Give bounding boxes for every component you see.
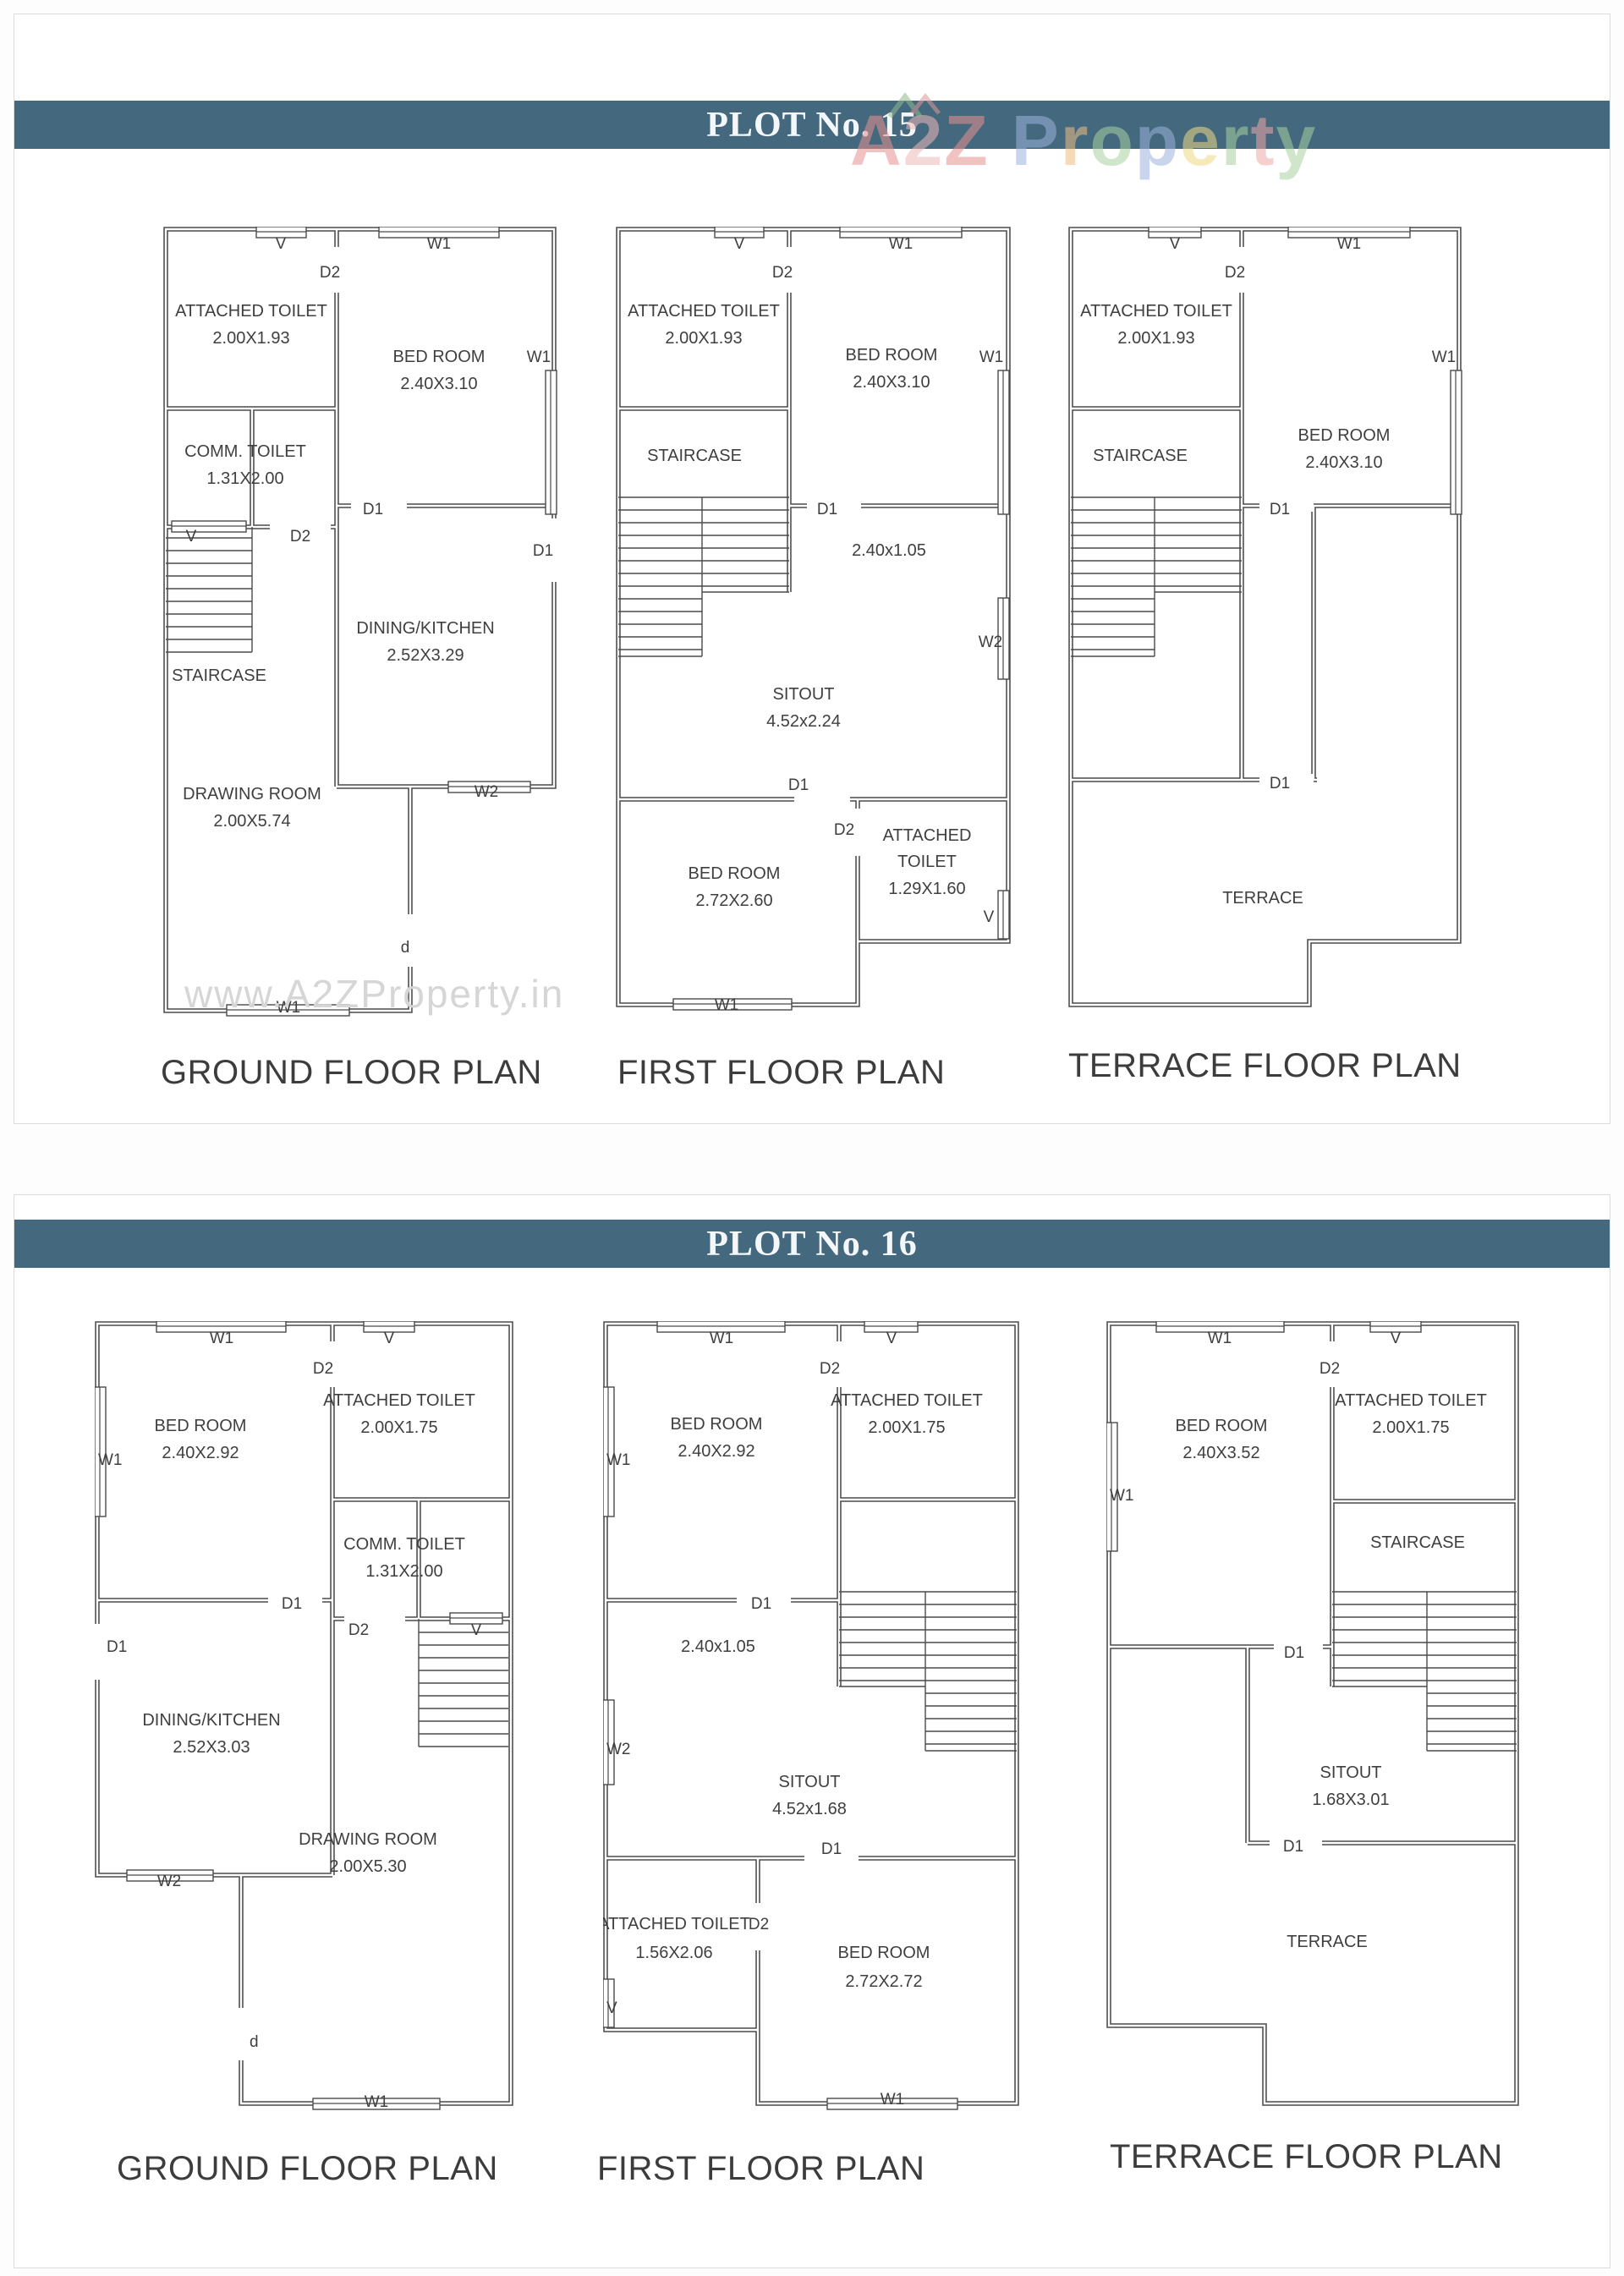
marker-w1: W1 <box>979 348 1004 366</box>
marker-d1: D1 <box>788 776 809 794</box>
marker-v: V <box>606 1999 617 2017</box>
room-label-drawing: DRAWING ROOM <box>183 785 321 803</box>
marker-d2: D2 <box>749 1916 769 1933</box>
marker-d1: D1 <box>282 1595 302 1613</box>
house-icon <box>886 88 942 120</box>
room-label-staircase: STAIRCASE <box>172 666 266 685</box>
room-dim-dining: 2.52X3.03 <box>173 1738 250 1757</box>
marker-d2: D2 <box>772 264 793 282</box>
room-dim-attached-toilet2: 1.56X2.06 <box>635 1944 712 1962</box>
marker-d2: D2 <box>820 1360 840 1378</box>
room-dim-passage: 2.40x1.05 <box>852 541 926 560</box>
room-label-attached-toilet: ATTACHED TOILET <box>1335 1391 1487 1410</box>
room-label-attached-toilet2: ATTACHED <box>883 826 972 845</box>
marker-w2: W2 <box>157 1873 182 1890</box>
room-label-bed-room: BED ROOM <box>393 348 486 366</box>
marker-d1: D1 <box>821 1840 842 1858</box>
logo-letter: e <box>1180 100 1221 182</box>
marker-w1: W1 <box>881 2091 905 2109</box>
marker-v: V <box>276 235 287 253</box>
marker-v: V <box>186 528 197 546</box>
room-dim-attached-toilet: 2.00X1.75 <box>360 1418 437 1437</box>
room-dim-bed-room2: 2.72X2.72 <box>845 1972 922 1991</box>
marker-v: V <box>1391 1330 1402 1347</box>
room-dim-comm-toilet: 1.31X2.00 <box>365 1562 442 1581</box>
room-dim-sitout: 4.52x1.68 <box>772 1800 847 1818</box>
room-dim-attached-toilet2: 1.29X1.60 <box>888 880 965 898</box>
floor-plan-plot16-ground: W1 V D2 W1 D1 D1 V D2 W2 W1 d BED ROOM 2… <box>95 1321 513 2112</box>
room-label-attached-toilet2: TOILET <box>897 853 957 871</box>
marker-d2: D2 <box>320 264 340 282</box>
marker-w1: W1 <box>889 235 913 253</box>
logo-letter: t <box>1250 100 1276 182</box>
room-dim-bed-room: 2.40X3.10 <box>400 375 477 393</box>
marker-w1: W1 <box>606 1451 631 1469</box>
room-label-drawing: DRAWING ROOM <box>299 1830 437 1849</box>
room-label-bed-room: BED ROOM <box>1176 1417 1268 1435</box>
marker-d1: D1 <box>817 501 837 518</box>
marker-w2: W2 <box>475 783 499 801</box>
room-label-bed-room: BED ROOM <box>155 1417 247 1435</box>
room-label-comm-toilet: COMM. TOILET <box>343 1535 465 1554</box>
marker-d1: D1 <box>751 1595 771 1613</box>
marker-d2: D2 <box>1225 264 1245 282</box>
room-label-sitout: SITOUT <box>779 1773 841 1791</box>
marker-d1: D1 <box>533 542 553 560</box>
room-dim-bed-room2: 2.72X2.60 <box>695 891 772 910</box>
marker-d1: D1 <box>1283 1838 1303 1856</box>
plot16-header-bar: PLOT No. 16 <box>14 1220 1610 1268</box>
room-dim-drawing: 2.00X5.74 <box>213 812 290 831</box>
room-dim-sitout: 1.68X3.01 <box>1312 1791 1389 1809</box>
marker-d1: D1 <box>1284 1644 1304 1662</box>
room-label-terrace: TERRACE <box>1222 889 1303 908</box>
room-dim-bed-room: 2.40X3.52 <box>1182 1444 1259 1462</box>
room-dim-attached-toilet: 2.00X1.93 <box>665 329 742 348</box>
room-label-bed-room2: BED ROOM <box>689 864 781 883</box>
marker-d2: D2 <box>290 528 310 546</box>
floor-plan-plot15-ground: V W1 D2 W1 D1 V D2 D1 W2 W1 d ATTACHED T… <box>163 227 558 1017</box>
room-label-dining: DINING/KITCHEN <box>142 1711 280 1730</box>
marker-v: V <box>1170 235 1181 253</box>
room-dim-comm-toilet: 1.31X2.00 <box>206 469 283 488</box>
room-label-dining: DINING/KITCHEN <box>356 619 494 638</box>
plot15-header-bar: PLOT No. 15 <box>14 101 1610 149</box>
marker-v: V <box>471 1621 482 1639</box>
marker-w1: W1 <box>715 996 739 1014</box>
marker-w1: W1 <box>710 1330 734 1347</box>
marker-w1: W1 <box>1337 235 1362 253</box>
room-dim-bed-room: 2.40X3.10 <box>853 373 930 392</box>
room-dim-bed-room: 2.40X3.10 <box>1305 453 1382 472</box>
room-dim-attached-toilet: 2.00X1.75 <box>868 1418 945 1437</box>
marker-d: d <box>250 2033 259 2051</box>
room-dim-bed-room: 2.40X2.92 <box>678 1442 754 1461</box>
room-dim-drawing: 2.00X5.30 <box>329 1857 406 1876</box>
marker-w1: W1 <box>98 1451 123 1469</box>
room-label-staircase: STAIRCASE <box>1370 1533 1465 1552</box>
marker-v: V <box>734 235 745 253</box>
plan-title-plot16-ground: GROUND FLOOR PLAN <box>117 2150 498 2188</box>
room-dim-attached-toilet: 2.00X1.93 <box>212 329 289 348</box>
room-dim-attached-toilet: 2.00X1.93 <box>1117 329 1194 348</box>
marker-w1: W1 <box>210 1330 234 1347</box>
room-label-bed-room2: BED ROOM <box>838 1944 930 1962</box>
room-dim-bed-room: 2.40X2.92 <box>162 1444 239 1462</box>
marker-d2: D2 <box>834 821 854 839</box>
marker-v: V <box>886 1330 897 1347</box>
marker-w2: W2 <box>606 1741 631 1758</box>
plan-title-plot15-first: FIRST FLOOR PLAN <box>617 1054 945 1092</box>
room-label-sitout: SITOUT <box>773 685 835 704</box>
marker-d1: D1 <box>107 1638 127 1656</box>
marker-d1: D1 <box>1270 501 1290 518</box>
room-label-attached-toilet: ATTACHED TOILET <box>831 1391 983 1410</box>
logo-letter: p <box>1135 100 1180 182</box>
logo-letter: r <box>1061 100 1090 182</box>
room-label-terrace: TERRACE <box>1287 1933 1368 1951</box>
room-dim-dining: 2.52X3.29 <box>387 646 464 665</box>
room-dim-sitout: 4.52x2.24 <box>766 712 841 731</box>
plan-title-plot15-ground: GROUND FLOOR PLAN <box>161 1054 542 1092</box>
marker-d1: D1 <box>1270 775 1290 792</box>
room-label-bed-room: BED ROOM <box>1298 426 1391 445</box>
plan-title-plot16-terrace: TERRACE FLOOR PLAN <box>1110 2138 1503 2176</box>
room-dim-passage: 2.40x1.05 <box>681 1637 755 1656</box>
floor-plan-plot15-terrace: V W1 D2 W1 D1 D1 ATTACHED TOILET 2.00X1.… <box>1068 227 1463 1017</box>
room-label-attached-toilet: ATTACHED TOILET <box>175 302 327 321</box>
logo-letter: P <box>1012 100 1061 182</box>
floor-plan-plot16-first: W1 V D2 W1 D1 W2 D1 D2 V W1 BED ROOM 2.4… <box>603 1321 1019 2112</box>
marker-w1: W1 <box>1208 1330 1232 1347</box>
marker-v: V <box>984 908 995 926</box>
marker-d2: D2 <box>1319 1360 1340 1378</box>
room-label-attached-toilet2: ATTACHED TOILET <box>603 1915 750 1933</box>
logo-letter: o <box>1089 100 1134 182</box>
room-label-staircase: STAIRCASE <box>1093 447 1188 465</box>
logo-letter: r <box>1221 100 1251 182</box>
room-dim-attached-toilet: 2.00X1.75 <box>1372 1418 1449 1437</box>
plan-title-plot16-first: FIRST FLOOR PLAN <box>597 2150 924 2188</box>
room-label-attached-toilet: ATTACHED TOILET <box>323 1391 475 1410</box>
marker-w1: W1 <box>427 235 452 253</box>
marker-w2: W2 <box>979 633 1003 651</box>
room-label-attached-toilet: ATTACHED TOILET <box>1080 302 1232 321</box>
floor-plan-plot16-terrace: W1 V D2 W1 D1 D1 BED ROOM 2.40X3.52 ATTA… <box>1106 1321 1521 2112</box>
marker-w1: W1 <box>1432 348 1457 366</box>
room-label-comm-toilet: COMM. TOILET <box>184 442 306 461</box>
room-label-sitout: SITOUT <box>1320 1763 1382 1782</box>
plot16-header-title: PLOT No. 16 <box>706 1224 917 1264</box>
marker-v: V <box>384 1330 395 1347</box>
room-label-staircase: STAIRCASE <box>647 447 742 465</box>
marker-w1: W1 <box>527 348 551 366</box>
marker-w1: W1 <box>365 2093 389 2111</box>
room-label-bed-room: BED ROOM <box>671 1415 763 1434</box>
room-label-bed-room: BED ROOM <box>846 346 938 365</box>
marker-d2: D2 <box>348 1621 369 1639</box>
floor-plan-plot15-first: V W1 D2 W1 D1 W2 D1 D2 V W1 ATTACHED TOI… <box>616 227 1011 1017</box>
room-label-attached-toilet: ATTACHED TOILET <box>628 302 780 321</box>
marker-d: d <box>401 939 410 957</box>
url-watermark: www.A2ZProperty.in <box>184 971 564 1017</box>
marker-d1: D1 <box>363 501 383 518</box>
plan-title-plot15-terrace: TERRACE FLOOR PLAN <box>1068 1047 1462 1085</box>
marker-d2: D2 <box>313 1360 333 1378</box>
marker-w1: W1 <box>1110 1487 1134 1505</box>
logo-letter: Z <box>944 100 989 182</box>
logo-letter: y <box>1276 100 1317 182</box>
